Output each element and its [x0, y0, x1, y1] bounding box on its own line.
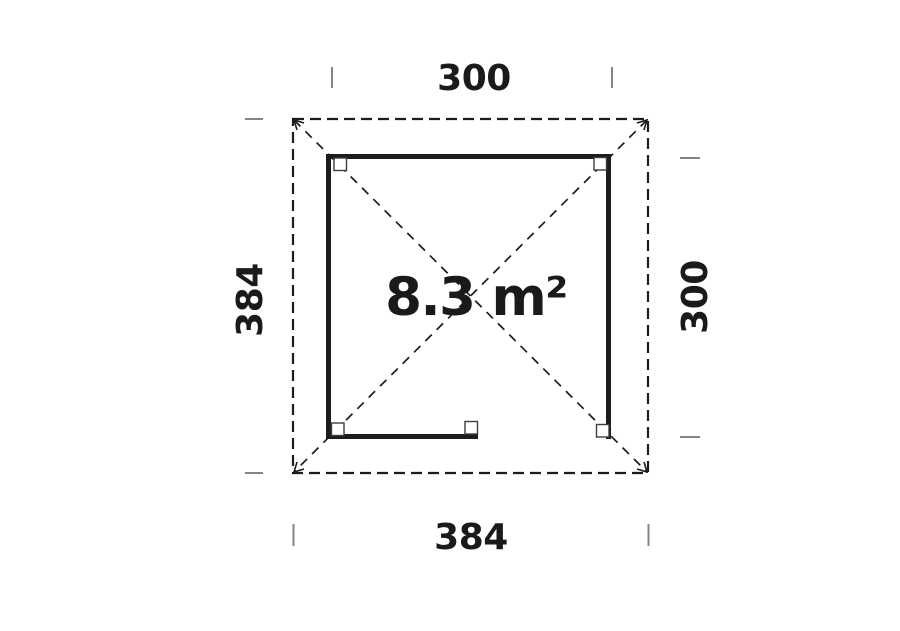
floor-plan-canvas: 300 384 384 300 8.3 m²	[0, 0, 900, 631]
post-door-opening	[465, 422, 478, 435]
dimension-label-left: 384	[230, 263, 271, 337]
post-top-left	[334, 158, 347, 171]
post-bottom-right	[597, 425, 610, 438]
post-top-right	[594, 158, 607, 171]
post-bottom-left	[332, 423, 345, 436]
floor-plan-drawing: 300 384 384 300 8.3 m²	[0, 0, 900, 631]
dimension-label-right: 300	[675, 260, 716, 334]
floor-area-label: 8.3 m²	[385, 267, 567, 328]
dimension-label-bottom: 384	[434, 517, 508, 558]
dimension-label-top: 300	[437, 58, 511, 99]
